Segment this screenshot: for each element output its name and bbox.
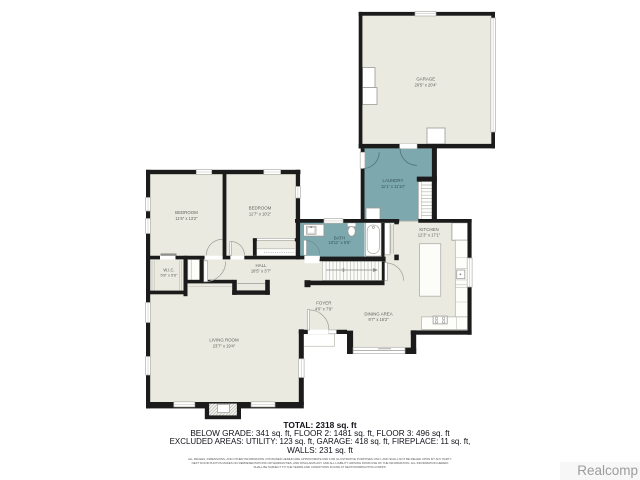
svg-text:BEDROOM: BEDROOM [175, 210, 198, 215]
svg-text:5'8" x 5'6": 5'8" x 5'6" [160, 272, 178, 277]
svg-text:12'3" x 17'1": 12'3" x 17'1" [418, 233, 441, 238]
svg-text:LIVING ROOM: LIVING ROOM [209, 338, 239, 343]
svg-text:DINING AREA: DINING AREA [364, 311, 392, 316]
svg-text:18'5" x 3'7": 18'5" x 3'7" [251, 269, 272, 274]
svg-text:KITCHEN: KITCHEN [419, 227, 438, 232]
svg-text:9'7" x 16'2": 9'7" x 16'2" [368, 317, 389, 322]
svg-text:20'5" x 20'4": 20'5" x 20'4" [415, 82, 438, 87]
svg-text:LAUNDRY: LAUNDRY [383, 178, 404, 183]
svg-text:23'7" x 19'4": 23'7" x 19'4" [213, 344, 236, 349]
svg-text:BEDROOM: BEDROOM [249, 206, 272, 211]
svg-text:10'11" x 5'5": 10'11" x 5'5" [328, 240, 351, 245]
svg-text:HALL: HALL [256, 263, 268, 268]
svg-text:11'6" x 13'2": 11'6" x 13'2" [175, 216, 198, 221]
svg-text:11'7" x 10'2": 11'7" x 10'2" [249, 211, 272, 216]
svg-text:GARAGE: GARAGE [416, 77, 435, 82]
svg-text:FOYER: FOYER [316, 301, 331, 306]
svg-text:4'0" x 7'9": 4'0" x 7'9" [315, 307, 333, 312]
svg-text:11'1" x 11'10": 11'1" x 11'10" [381, 184, 406, 189]
